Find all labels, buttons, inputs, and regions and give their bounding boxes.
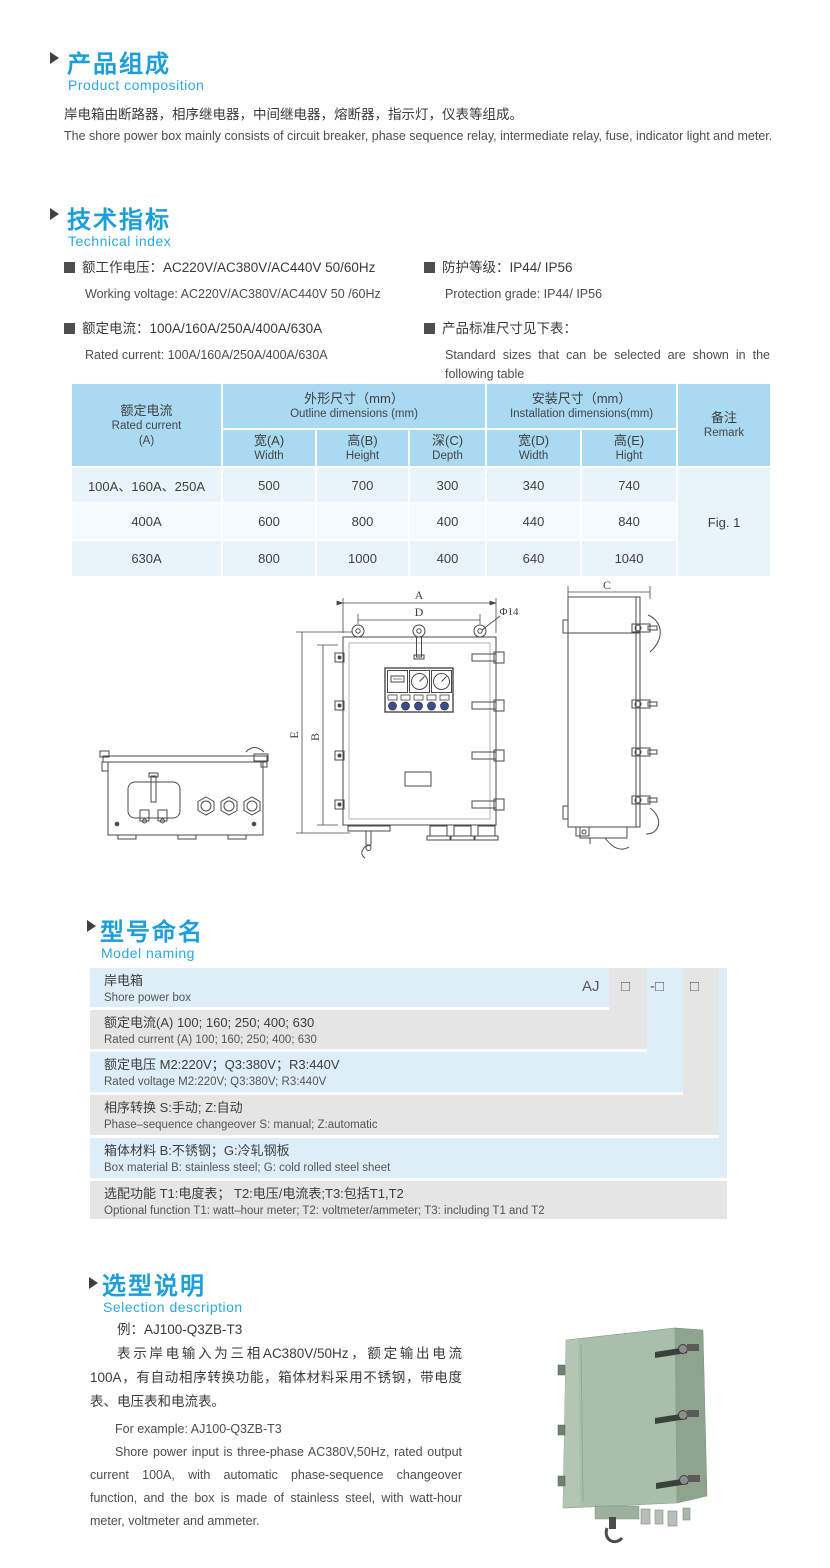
code-column-3 — [683, 968, 719, 1095]
dim-label-b: B — [308, 733, 322, 741]
section-arrow-icon — [50, 208, 59, 220]
section-arrow-icon — [89, 1277, 98, 1289]
dim-label-c: C — [603, 580, 611, 592]
col-header-remark: 备注 Remark — [677, 383, 771, 467]
selection-title: 选型说明 — [102, 1266, 206, 1301]
composition-body-cn: 岸电箱由断路器，相序继电器，中间继电器，熔断器，指示灯，仪表等组成。 — [64, 103, 784, 123]
model-row-rated-current: 额定电流(A) 100; 160; 250; 400; 630Rated cur… — [90, 1010, 647, 1049]
bullet-square-icon — [64, 262, 75, 273]
code-column-4 — [719, 968, 727, 1138]
cell-current: 630A — [71, 540, 222, 577]
selection-example-en: For example: AJ100-Q3ZB-T3 — [90, 1418, 462, 1441]
composition-body-en: The shore power box mainly consists of c… — [64, 129, 794, 143]
spec-column-right: 防护等级：IP44/ IP56 Protection grade: IP44/ … — [424, 256, 770, 397]
size-table: 额定电流 Rated current (A) 外形尺寸（mm） Outline … — [70, 382, 772, 578]
cable-glands — [595, 1506, 690, 1542]
model-code-slot3: □ — [690, 978, 699, 995]
model-code-slot1: □ — [621, 978, 630, 995]
cell-current: 100A、160A、250A — [71, 467, 222, 503]
model-code-slot2: -□ — [650, 978, 664, 995]
selection-subtitle: Selection description — [103, 1299, 243, 1315]
bullet-square-icon — [64, 323, 75, 334]
col-header-width-d: 宽(D)Width — [486, 429, 581, 467]
model-code-prefix: AJ — [582, 978, 600, 995]
side-view-drawing — [563, 586, 660, 849]
remark-cell: Fig. 1 — [677, 467, 771, 577]
cell-current: 400A — [71, 503, 222, 540]
selection-text-block: 例：AJ100-Q3ZB-T3 表示岸电输入为三相AC380V/50Hz，额定输… — [90, 1318, 462, 1533]
model-subtitle: Model naming — [101, 945, 195, 961]
selection-example-cn: 例：AJ100-Q3ZB-T3 — [90, 1318, 462, 1342]
model-row-shore-power-box: 岸电箱Shore power box — [90, 968, 609, 1007]
model-row-phase-sequence: 相序转换 S:手动; Z:自动Phase–sequence changeover… — [90, 1095, 719, 1135]
section-arrow-icon — [87, 920, 96, 932]
table-row: 630A 800 1000 400 640 1040 — [71, 540, 771, 577]
dim-label-a: A — [415, 588, 424, 602]
composition-subtitle: Product composition — [68, 77, 204, 93]
model-naming-diagram: 岸电箱Shore power box 额定电流(A) 100; 160; 250… — [90, 968, 727, 1219]
section-arrow-icon — [50, 52, 59, 64]
front-view-drawing — [335, 625, 504, 858]
outline-drawing: A D Φ14 E B C — [60, 580, 770, 880]
col-header-outline: 外形尺寸（mm） Outline dimensions (mm) — [222, 383, 486, 429]
col-header-rated-current: 额定电流 Rated current (A) — [71, 383, 222, 467]
bottom-view-drawing — [100, 748, 268, 840]
model-row-box-material: 箱体材料 B:不锈钢；G:冷轧钢板Box material B: stainle… — [90, 1138, 727, 1178]
selection-body-en: Shore power input is three-phase AC380V,… — [90, 1441, 462, 1533]
col-header-depth-c: 深(C)Depth — [409, 429, 486, 467]
spec-column-left: 额工作电压：AC220V/AC380V/AC440V 50/60Hz Worki… — [64, 256, 420, 378]
dim-label-d: D — [415, 605, 424, 619]
bullet-square-icon — [424, 323, 435, 334]
model-row-rated-voltage: 额定电压 M2:220V；Q3:380V；R3:440VRated voltag… — [90, 1052, 683, 1092]
col-header-installation: 安装尺寸（mm） Installation dimensions(mm) — [486, 383, 677, 429]
col-header-height-b: 高(B)Height — [316, 429, 409, 467]
table-row: 100A、160A、250A 500 700 300 340 740 Fig. … — [71, 467, 771, 503]
model-row-optional-function: 选配功能 T1:电度表； T2:电压/电流表;T3:包括T1,T2Optiona… — [90, 1181, 727, 1219]
product-photo — [545, 1310, 800, 1565]
composition-title: 产品组成 — [67, 44, 171, 79]
selection-body-cn: 表示岸电输入为三相AC380V/50Hz，额定输出电流100A，有自动相序转换功… — [90, 1342, 462, 1414]
dimension-lines — [296, 598, 500, 833]
dim-label-e: E — [287, 731, 301, 738]
technical-title: 技术指标 — [67, 200, 171, 235]
model-title: 型号命名 — [100, 912, 204, 947]
bullet-square-icon — [424, 262, 435, 273]
col-header-height-e: 高(E)Hight — [581, 429, 677, 467]
spec-protection-grade: 防护等级：IP44/ IP56 Protection grade: IP44/ … — [424, 256, 770, 304]
spec-rated-current: 额定电流：100A/160A/250A/400A/630A Rated curr… — [64, 317, 420, 365]
hole-label: Φ14 — [499, 606, 519, 618]
spec-standard-sizes: 产品标准尺寸见下表： Standard sizes that can be se… — [424, 317, 770, 384]
datasheet-page: 产品组成 Product composition 岸电箱由断路器，相序继电器，中… — [0, 0, 830, 1568]
spec-working-voltage: 额工作电压：AC220V/AC380V/AC440V 50/60Hz Worki… — [64, 256, 420, 304]
col-header-width-a: 宽(A)Width — [222, 429, 316, 467]
table-row: 400A 600 800 400 440 840 — [71, 503, 771, 540]
technical-subtitle: Technical index — [68, 233, 171, 249]
